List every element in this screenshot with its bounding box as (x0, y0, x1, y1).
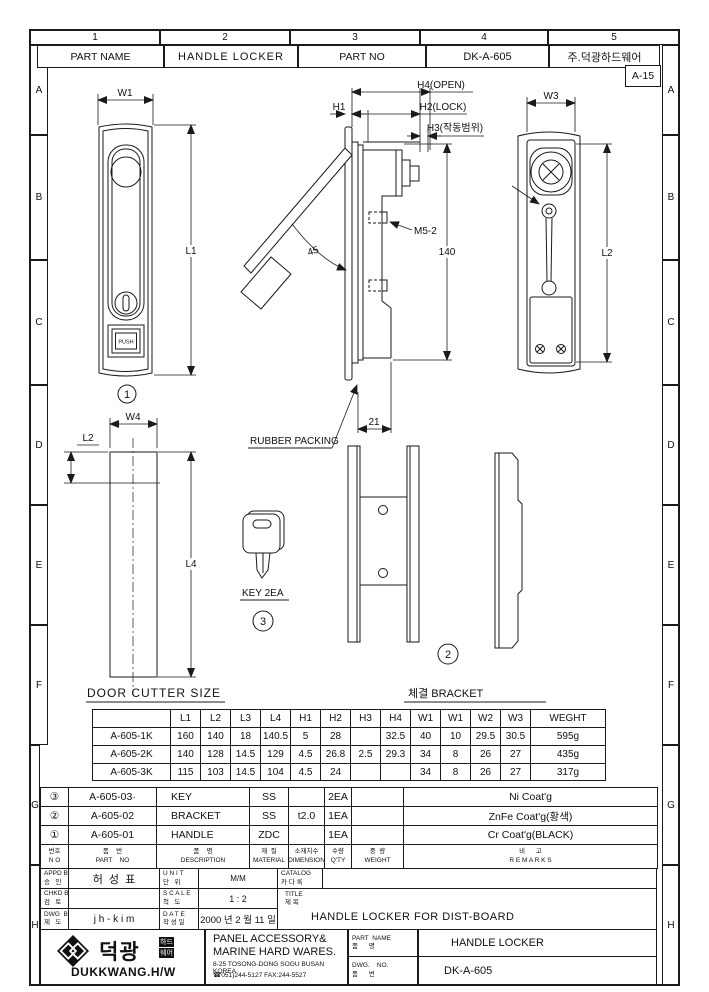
bom-weight (352, 826, 404, 845)
ruler-label: 4 (481, 32, 487, 43)
ruler-row-f: F (30, 625, 48, 745)
ruler-col-2: 2 (160, 30, 290, 45)
cell: 34 (411, 764, 441, 781)
dim-text-l4: L4 (185, 559, 197, 570)
col-header: L2 (201, 710, 231, 728)
label-kr: 단 위 (163, 879, 180, 887)
ruler-label: 5 (611, 32, 617, 43)
cell: 8 (441, 764, 471, 781)
date-label: D A T E작 성 일 (159, 908, 199, 930)
scale-value: 1 : 2 (198, 888, 278, 909)
label-en: Q'TY (331, 857, 346, 865)
cell: 140 (171, 746, 201, 764)
ruler-label: C (667, 317, 674, 328)
bom-weight (352, 807, 404, 826)
ruler-label: D (35, 440, 42, 451)
cell: 32.5 (381, 728, 411, 746)
link-pin-upper (542, 204, 556, 218)
value: 2000 년 2 월 11 일 (200, 912, 276, 926)
ruler-col-1: 1 (30, 30, 160, 45)
ruler-row-b: B (30, 135, 48, 260)
label: PART NO (339, 51, 385, 63)
label-kr: 품 번 (103, 848, 122, 856)
label-en: PART NO (96, 857, 130, 865)
m5-stud-hidden (369, 212, 382, 223)
bom-header-row: 번호N O 품 번PART NO 품 명DESCRIPTION 재 질MATER… (41, 845, 658, 869)
col-header: H1 (291, 710, 321, 728)
leader-rubber-packing (332, 385, 357, 448)
label-kr: 품 번 (352, 971, 375, 979)
cell: 2.5 (351, 746, 381, 764)
dwg-by-value: j h - k i m (68, 908, 160, 930)
ruler-row-e: E (30, 505, 48, 625)
cutout-rectangle (110, 452, 157, 677)
bom-part-no: A-605-03· (69, 788, 157, 807)
handle-blade (112, 149, 140, 316)
cell: 5 (291, 728, 321, 746)
dim-text-h4: H4(OPEN) (417, 80, 465, 91)
label-kr: 검 토 (44, 899, 61, 907)
cell: 140.5 (261, 728, 291, 746)
ruler-col-4: 4 (420, 30, 548, 45)
label: PART NAME (70, 51, 130, 63)
ruler-row-f-right: F (662, 625, 680, 745)
bom-header-dim: 소재치수DIMENSION (289, 845, 325, 869)
cell: 128 (201, 746, 231, 764)
col-header: H2 (321, 710, 351, 728)
dim-text-w3: W3 (544, 91, 559, 102)
bom-dimension (289, 826, 325, 845)
value: HANDLE LOCKER (178, 51, 284, 63)
col-header: W2 (471, 710, 501, 728)
bom-row-3: ③ A-605-03· KEY SS 2EA Ni Coat'g (41, 788, 658, 807)
cell: 26.8 (321, 746, 351, 764)
ruler-label: G (31, 800, 39, 811)
link-pin-lower (542, 281, 556, 295)
dwg-by-label: DWG BY제 도 (40, 908, 69, 930)
ruler-col-3: 3 (290, 30, 420, 45)
bom-dimension (289, 788, 325, 807)
dim-text-w1: W1 (118, 88, 133, 99)
value: 주.덕광하드웨어 (568, 49, 642, 65)
bom-header-wt: 중 량WEIGHT (352, 845, 404, 869)
drawing-sheet: 1 2 3 4 5 A B C D E F G H A B C D E F G … (0, 0, 709, 992)
bom-table: ③ A-605-03· KEY SS 2EA Ni Coat'g ② A-605… (40, 787, 658, 869)
extension-lines (527, 97, 575, 132)
cell: 14.5 (231, 746, 261, 764)
catalog-label: CATALOG카 다 록 (277, 868, 323, 889)
cell: A-605-2K (93, 746, 171, 764)
label-en: MATERIAL (253, 857, 285, 865)
push-label: PUSH (118, 340, 133, 346)
label-kr: 승 인 (44, 879, 61, 887)
label-kr: 제 도 (44, 919, 61, 927)
phillips-cross-icon (537, 346, 543, 352)
chkd-by-value (68, 888, 160, 909)
col-header: W3 (501, 710, 531, 728)
housing-step (382, 196, 396, 212)
dim-text-w4: W4 (126, 412, 141, 423)
pointer-arrow (512, 186, 539, 204)
push-knob-circle (111, 157, 141, 187)
label-m5-2: M5-2 (414, 226, 437, 237)
cell (351, 764, 381, 781)
dim-text-21: 21 (368, 417, 380, 428)
link-rod (546, 218, 552, 281)
company-phone: ☎051)244-5127 FAX:244-5527 (213, 971, 306, 979)
handle-body-inner (103, 129, 148, 372)
col-header (93, 710, 171, 728)
bom-qty: 1EA (325, 826, 352, 845)
header-part-no-value: DK-A-605 (426, 45, 549, 68)
table-row: L1 L2 L3 L4 H1 H2 H3 H4 W1 W1 W2 W3 WEGH… (93, 710, 606, 728)
label-kr: 중 량 (370, 848, 386, 856)
value: HANDLE LOCKER (451, 937, 544, 949)
bracket-rail-left (348, 446, 360, 642)
logo-sub-box: 웨어 (159, 948, 174, 958)
stud-nut (410, 166, 419, 181)
bom-row-2: ② A-605-02 BRACKET SS t2.0 1EA ZnFe Coat… (41, 807, 658, 826)
value: DK-A-605 (463, 51, 511, 63)
ruler-label: 3 (352, 32, 358, 43)
cell: 4.5 (291, 764, 321, 781)
extension-lines (64, 452, 160, 483)
cell: 4.5 (291, 746, 321, 764)
label-en: R E M A R K S (509, 857, 551, 865)
ruler-label: A (668, 85, 675, 96)
ruler-label: E (36, 560, 43, 571)
dukkwang-logo-icon (57, 935, 89, 967)
bom-qty: 2EA (325, 788, 352, 807)
bom-description: HANDLE (157, 826, 250, 845)
dwg-no-value: DK-A-605 (418, 956, 657, 985)
phillips-cross-icon (543, 164, 559, 180)
bom-part-no: A-605-02 (69, 807, 157, 826)
unit-value: M/M (198, 868, 278, 889)
stud-plate (396, 150, 402, 196)
ruler-row-g-right: G (662, 745, 680, 865)
keyhole-slot (123, 295, 129, 311)
dim-text-l2-back: L2 (601, 248, 613, 259)
cell: 26 (471, 764, 501, 781)
ruler-label: D (667, 440, 674, 451)
label-en: N O (49, 857, 61, 865)
bom-no: ① (41, 826, 69, 845)
appd-by-label: APPD BY승 인 (40, 868, 69, 889)
label-kr: 품 명 (352, 943, 375, 951)
bom-weight (352, 788, 404, 807)
title-label: TITLE제 목 (282, 891, 303, 907)
ruler-row-c-right: C (662, 260, 680, 385)
ruler-label: H (31, 920, 38, 931)
label-kr: 번호 (49, 848, 61, 856)
cell: 27 (501, 764, 531, 781)
bom-header-mat: 재 질MATERIAL (250, 845, 289, 869)
m5-stud-boss (382, 212, 387, 223)
header-part-name-value: HANDLE LOCKER (164, 45, 298, 68)
dim-text-140: 140 (439, 247, 456, 258)
label-en: CATALOG (281, 870, 311, 878)
ruler-label: E (668, 560, 675, 571)
label-kr: 재 질 (261, 848, 277, 856)
bom-header-rem: 비 고R E M A R K S (404, 845, 658, 869)
cell (381, 764, 411, 781)
m5-stud-boss (382, 280, 387, 291)
label-kr: 작 성 일 (163, 919, 185, 927)
cell: 129 (261, 746, 291, 764)
label-en: WEIGHT (365, 857, 391, 865)
link-pin-upper-inner (546, 208, 552, 214)
bracket-hole (379, 569, 388, 578)
cell: 28 (321, 728, 351, 746)
ruler-row-e-right: E (662, 505, 680, 625)
cell: 26 (471, 746, 501, 764)
label-kr: 비 고 (519, 848, 542, 856)
col-header: W1 (411, 710, 441, 728)
ruler-col-5: 5 (548, 30, 680, 45)
angle-arc-45 (292, 224, 346, 270)
value: DK-A-605 (444, 965, 492, 977)
dimension-table: L1 L2 L3 L4 H1 H2 H3 H4 W1 W1 W2 W3 WEGH… (92, 709, 606, 781)
unit-label: U N I T단 위 (159, 868, 199, 889)
ruler-row-c: C (30, 260, 48, 385)
bom-row-1: ① A-605-01 HANDLE ZDC 1EA Cr Coat'g(BLAC… (41, 826, 658, 845)
side-view: H4(OPEN) H2(LOCK) H1 H3(작동범위) (241, 80, 484, 448)
label-en: S C A L E (163, 890, 191, 898)
dim-text-h2: H2(LOCK) (420, 102, 467, 113)
value: j h - k i m (94, 914, 135, 925)
date-value: 2000 년 2 월 11 일 (198, 908, 278, 930)
logo-sub-box: 하드 (159, 937, 174, 947)
bom-remarks: ZnFe Coat'g(황색) (404, 807, 658, 826)
cell: 24 (321, 764, 351, 781)
cell: 10 (441, 728, 471, 746)
ruler-row-d-right: D (662, 385, 680, 505)
bom-material: SS (250, 788, 289, 807)
handle-recess (108, 145, 144, 320)
door-cutter-view: W4 L2 L4 DOOR CUTTER SIZE (64, 412, 225, 702)
cell: 40 (411, 728, 441, 746)
logo-english-name: DUKKWANG.H/W (71, 965, 176, 979)
cell: 140 (201, 728, 231, 746)
label-en: DIMENSION (289, 857, 325, 865)
label-en: TITLE (285, 891, 303, 899)
housing-bottom (363, 291, 391, 358)
cell: 595g (531, 728, 606, 746)
dim-text-h1: H1 (333, 102, 346, 113)
col-header: H3 (351, 710, 381, 728)
label-en: PART NAME (352, 935, 391, 943)
col-header: H4 (381, 710, 411, 728)
label-kr: 카 다 록 (281, 879, 303, 887)
bom-no: ③ (41, 788, 69, 807)
chkd-by-label: CHKD BY검 토 (40, 888, 69, 909)
cell: 18 (231, 728, 261, 746)
bom-qty: 1EA (325, 807, 352, 826)
label-en: D A T E (163, 911, 185, 919)
ruler-label: F (36, 680, 42, 691)
ruler-label: B (36, 192, 43, 203)
label-kr: 소재치수 (295, 848, 319, 856)
appd-by-value: 허 성 표 (68, 868, 160, 889)
bom-description: BRACKET (157, 807, 250, 826)
ruler-label: 2 (222, 32, 228, 43)
ruler-row-b-right: B (662, 135, 680, 260)
ruler-label: A (36, 85, 43, 96)
company-line-1: PANEL ACCESSORY& (213, 933, 327, 945)
bom-header-no: 번호N O (41, 845, 69, 869)
cell: 8 (441, 746, 471, 764)
ruler-row-d: D (30, 385, 48, 505)
label-en: DESCRIPTION (181, 857, 225, 865)
ruler-label: G (667, 800, 675, 811)
col-header: L3 (231, 710, 261, 728)
bom-header-desc: 품 명DESCRIPTION (157, 845, 250, 869)
leader-m5-2 (390, 222, 412, 230)
bom-no: ② (41, 807, 69, 826)
rubber-packing-strip (358, 145, 363, 360)
logo-sub-boxes: 하드 웨어 (159, 937, 174, 958)
phillips-cross-icon (558, 346, 564, 352)
bracket-view: 2 체결 BRACKET (348, 446, 546, 702)
ruler-row-a-right: A (662, 45, 680, 135)
stud-washer (402, 160, 410, 186)
value: 허 성 표 (93, 871, 136, 887)
col-header: L4 (261, 710, 291, 728)
escutcheon-plate (345, 127, 352, 380)
ruler-row-h-right: H (662, 865, 680, 985)
dim-text-l2: L2 (82, 433, 94, 444)
cell: 14.5 (231, 764, 261, 781)
cell: 29.5 (471, 728, 501, 746)
label-kr: 제 목 (285, 899, 299, 907)
ruler-label: 1 (92, 32, 98, 43)
angle-text-45: 45 (306, 245, 320, 259)
bom-dimension: t2.0 (289, 807, 325, 826)
ruler-label: C (35, 317, 42, 328)
cell: A-605-3K (93, 764, 171, 781)
ruler-row-h: H (30, 865, 40, 985)
header-part-name-label: PART NAME (37, 45, 164, 68)
bom-description: KEY (157, 788, 250, 807)
m5-stud-hidden (369, 280, 382, 291)
label-kr: 수량 (332, 848, 344, 856)
cell: 435g (531, 746, 606, 764)
door-cutter-caption: DOOR CUTTER SIZE (87, 686, 221, 700)
cell: 317g (531, 764, 606, 781)
bom-header-qty: 수량Q'TY (325, 845, 352, 869)
balloon-1-text: 1 (124, 389, 130, 401)
front-view: W1 PUSH L1 1 (98, 88, 199, 403)
col-header: W1 (441, 710, 471, 728)
part-name-label: PART NAME품 명 (348, 929, 418, 957)
label-en: U N I T (163, 870, 183, 878)
dim-text-l1: L1 (185, 246, 197, 257)
dwg-no-label: DWG. NO.품 번 (348, 956, 418, 985)
cell: 160 (171, 728, 201, 746)
logo-korean-name: 덕광 (99, 936, 140, 966)
rubber-packing-label: RUBBER PACKING (250, 436, 339, 447)
bracket-plate (360, 497, 407, 585)
header-part-no-label: PART NO (298, 45, 426, 68)
label-kr: 척 도 (163, 899, 180, 907)
cell: 104 (261, 764, 291, 781)
label-kr: 품 명 (193, 848, 212, 856)
bracket-rail-right (407, 446, 419, 642)
back-view: W3 L2 (512, 91, 616, 373)
title-box: TITLE제 목 HANDLE LOCKER FOR DIST-BOARD (277, 888, 657, 930)
part-name-value: HANDLE LOCKER (418, 929, 657, 957)
col-header: L1 (171, 710, 201, 728)
bracket-caption: 체결 BRACKET (408, 687, 484, 700)
cell: 30.5 (501, 728, 531, 746)
bracket-hole (379, 506, 388, 515)
drawing-canvas: W1 PUSH L1 1 W4 (48, 68, 662, 710)
ruler-label: H (667, 920, 674, 931)
base-plate (352, 142, 358, 363)
ruler-label: F (668, 680, 674, 691)
cell: 103 (201, 764, 231, 781)
company-logo-cell: 덕광 하드 웨어 DUKKWANG.H/W (40, 929, 205, 985)
cell: 29.3 (381, 746, 411, 764)
key-caption: KEY 2EA (242, 588, 284, 599)
table-row: A-605-1K16014018140.552832.5401029.530.5… (93, 728, 606, 746)
cell: 34 (411, 746, 441, 764)
cell: 115 (171, 764, 201, 781)
balloon-2-text: 2 (445, 649, 451, 661)
label-en: DWG. NO. (352, 962, 388, 970)
bom-material: ZDC (250, 826, 289, 845)
col-header: WEGHT (531, 710, 606, 728)
table-row: A-605-2K14012814.51294.526.82.529.334826… (93, 746, 606, 764)
company-address-cell: PANEL ACCESSORY& MARINE HARD WARES. 8-25… (205, 929, 348, 985)
bom-header-part: 품 번PART NO (69, 845, 157, 869)
value: M/M (230, 874, 246, 883)
lever-arm (244, 148, 352, 273)
dim-text-h3: H3(작동범위) (427, 121, 483, 134)
bom-remarks: Cr Coat'g(BLACK) (404, 826, 658, 845)
bom-remarks: Ni Coat'g (404, 788, 658, 807)
company-line-2: MARINE HARD WARES. (213, 946, 336, 958)
scale-label: S C A L E척 도 (159, 888, 199, 909)
cell (351, 728, 381, 746)
ruler-row-g: G (30, 745, 40, 865)
value: 1 : 2 (229, 894, 247, 904)
latch-plate (530, 297, 572, 363)
drawing-title: HANDLE LOCKER FOR DIST-BOARD (311, 911, 514, 923)
ruler-label: B (668, 192, 675, 203)
key-view: KEY 2EA 3 (240, 511, 289, 631)
bom-part-no: A-605-01 (69, 826, 157, 845)
bom-material: SS (250, 807, 289, 826)
catalog-value (322, 868, 657, 889)
cell: 27 (501, 746, 531, 764)
balloon-3-text: 3 (260, 616, 266, 628)
cell: A-605-1K (93, 728, 171, 746)
table-row: A-605-3K11510314.51044.5243482627317g (93, 764, 606, 781)
